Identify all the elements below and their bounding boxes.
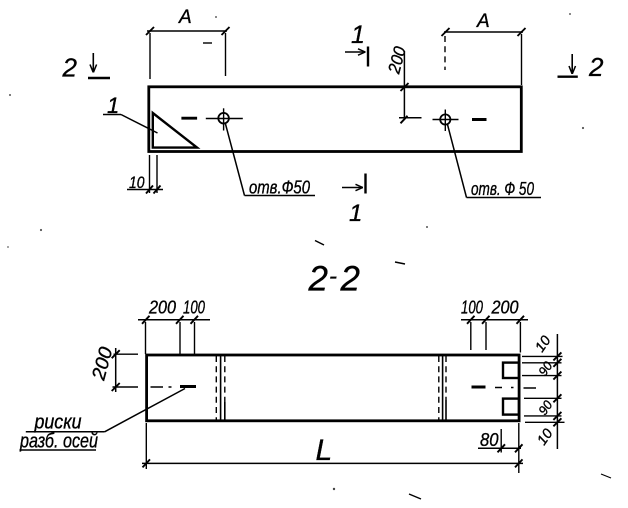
svg-text:200: 200 <box>384 44 410 76</box>
svg-text:1: 1 <box>351 21 365 49</box>
svg-text:200: 200 <box>88 345 117 384</box>
svg-text:80: 80 <box>480 430 499 450</box>
svg-text:2: 2 <box>340 260 360 299</box>
svg-text:1: 1 <box>349 200 362 227</box>
svg-text:2: 2 <box>62 53 78 83</box>
svg-text:2: 2 <box>588 52 604 82</box>
svg-text:1: 1 <box>107 93 119 118</box>
svg-text:отв. Ф 50: отв. Ф 50 <box>471 179 534 199</box>
svg-text:10: 10 <box>531 332 553 354</box>
svg-text:разб. осей: разб. осей <box>19 431 98 453</box>
svg-text:100: 100 <box>461 298 483 318</box>
svg-text:А: А <box>178 7 192 28</box>
svg-text:200: 200 <box>491 298 519 318</box>
svg-text:10: 10 <box>533 425 555 447</box>
svg-text:10: 10 <box>129 173 145 192</box>
svg-text:200: 200 <box>148 298 176 318</box>
svg-text:90: 90 <box>535 397 556 418</box>
svg-text:100: 100 <box>183 298 205 318</box>
svg-text:А: А <box>476 11 490 32</box>
svg-text:L: L <box>316 434 333 467</box>
svg-text:отв.Ф50: отв.Ф50 <box>249 178 310 198</box>
svg-text:2: 2 <box>308 260 328 299</box>
svg-text:-: - <box>329 263 337 290</box>
